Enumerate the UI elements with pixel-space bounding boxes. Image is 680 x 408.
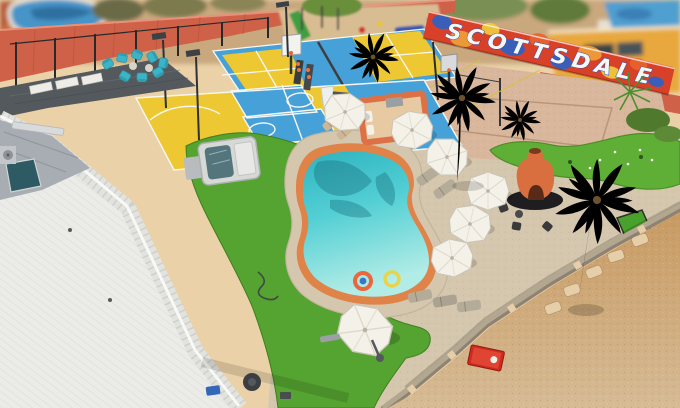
putting-hole [568, 160, 572, 164]
aerial-photo-scene: SCOTTSDALE [0, 0, 680, 408]
chimney-cap [529, 148, 541, 154]
scene-svg: SCOTTSDALE [0, 0, 680, 408]
hoop-rim [289, 51, 293, 55]
cushion [366, 124, 374, 135]
hot-tub-cover [234, 142, 256, 176]
fire-chair [511, 221, 521, 230]
side-table [515, 210, 523, 218]
patio-chair [280, 392, 291, 399]
putting-hole [639, 155, 643, 159]
